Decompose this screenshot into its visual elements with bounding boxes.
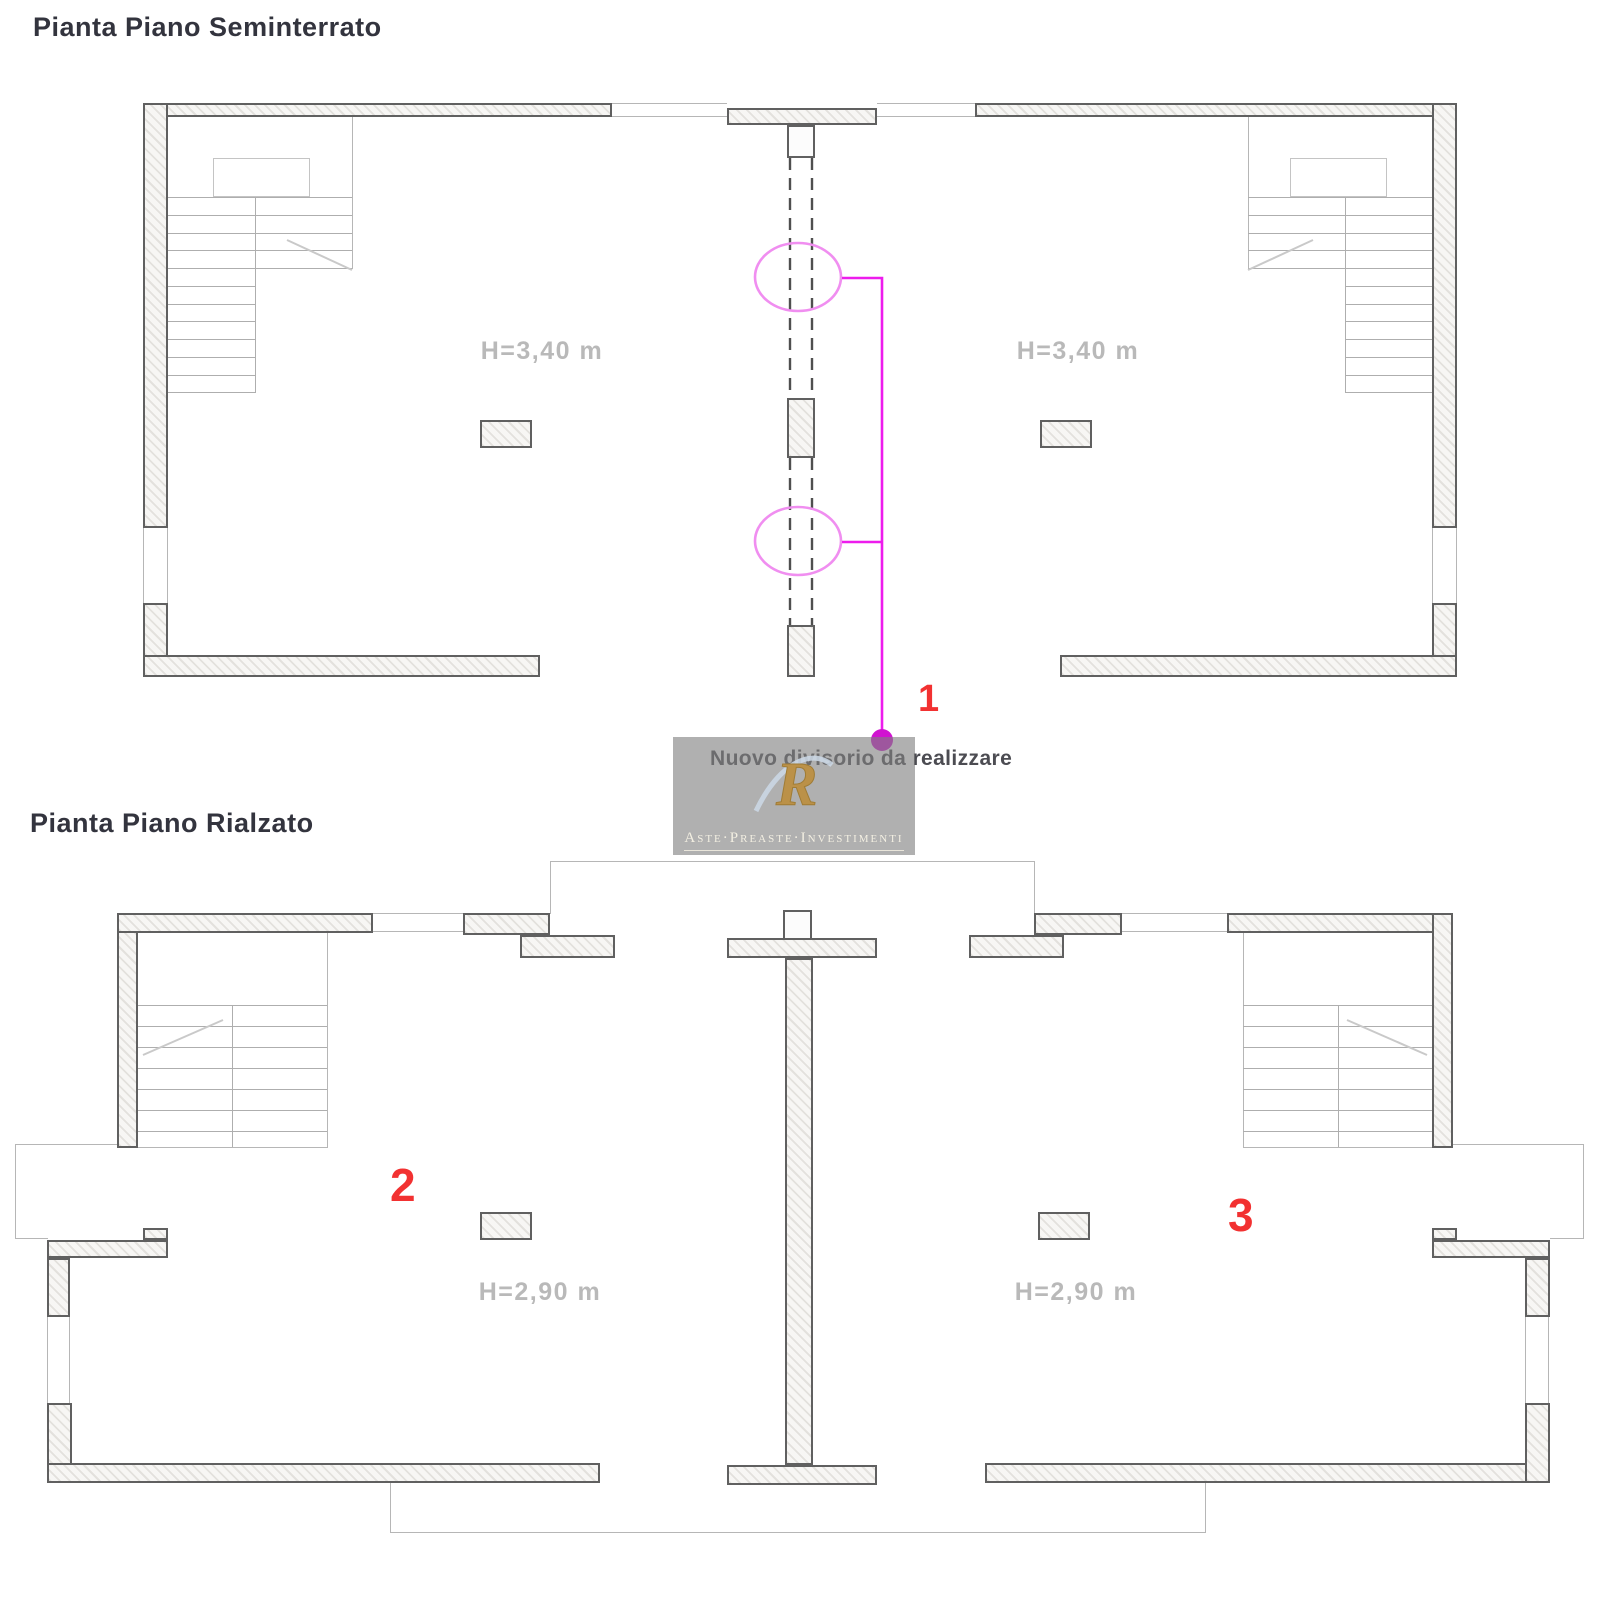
wall-segment [1060,655,1457,677]
thin-line [612,116,727,117]
wall-segment [787,398,815,458]
wall-segment [985,1463,1550,1483]
thin-line [1453,1144,1584,1145]
stair-tread [1248,233,1432,234]
height-label-upper-left: H=3,40 m [432,337,652,366]
lower-plan-title: Pianta Piano Rialzato [30,808,314,839]
wall-segment [480,420,532,448]
thin-line [1107,913,1227,914]
thin-line [877,103,975,104]
wall-segment [463,913,550,935]
thin-line [373,931,463,932]
thin-line [390,1483,391,1533]
marker-3: 3 [1228,1192,1254,1238]
thin-line [1107,931,1227,932]
thin-line [1243,933,1244,1148]
stair-tread [1345,392,1432,393]
wall-segment [520,935,615,958]
thin-line [1432,528,1433,604]
thin-line [550,861,1035,862]
wall-segment [1525,1403,1550,1483]
stair-tread [255,197,256,393]
stair-tread [168,197,352,198]
watermark-box: R Aste·Preaste·Investimenti [673,737,915,855]
floor-plan-sheet: Pianta Piano Seminterrato Pianta Piano R… [0,0,1600,1600]
stair-tread [1345,197,1346,393]
thin-line [15,1144,118,1145]
watermark-caption: Aste·Preaste·Investimenti [684,830,903,851]
wall-segment [1040,420,1092,448]
thin-line [15,1238,48,1239]
thin-line [47,1317,48,1403]
wall-segment [1038,1212,1090,1240]
thin-line [612,103,727,104]
marker-2: 2 [390,1162,416,1208]
stair-tread [232,1005,233,1147]
thin-line [143,528,144,604]
wall-segment [1432,103,1457,528]
thin-line [352,117,353,269]
stair-tread [1345,304,1432,305]
thin-line [138,1147,328,1148]
wall-segment [975,103,1457,117]
stair-tread [1248,268,1432,269]
wall-segment [143,103,612,117]
wall-segment [727,108,877,125]
thin-line [69,1317,70,1403]
stair-tread [1345,339,1432,340]
wall-segment [480,1212,532,1240]
marker-1: 1 [918,680,939,718]
wall-end-segment [783,910,812,940]
stair-tread [1345,357,1432,358]
wall-segment [1432,1240,1550,1258]
wall-segment [143,1228,168,1240]
thin-line [327,933,328,1148]
thin-line [877,116,975,117]
thin-line [390,1532,1206,1533]
thin-line [1548,1317,1549,1403]
wall-segment [787,625,815,677]
thin-line [1243,1147,1453,1148]
wall-segment [727,1465,877,1485]
stair-tread [168,392,255,393]
thin-line [15,1144,16,1239]
thin-line [167,528,168,604]
thin-line [1248,117,1249,269]
stair-tread [168,286,255,287]
wall-segment [117,913,373,933]
stair-tread [1345,321,1432,322]
wall-segment [47,1258,70,1317]
stair-tread [1345,375,1432,376]
stair-landing-outline [213,158,310,197]
wall-segment [1432,913,1453,1148]
wall-end-segment [787,125,815,158]
stair-tread [168,321,255,322]
wall-segment [1432,1228,1457,1240]
wall-segment [785,958,813,1465]
stair-tread [1345,286,1432,287]
stair-tread [168,215,352,216]
thin-line [1456,528,1457,604]
wall-segment [47,1463,600,1483]
wall-segment [1525,1258,1550,1317]
leader-line-1 [842,278,893,751]
thin-line [1525,1317,1526,1403]
wall-segment [143,655,540,677]
stair-tread [168,304,255,305]
thin-line [373,913,463,914]
dashed-partition-lines [790,158,812,625]
thin-line [1550,1238,1584,1239]
stair-tread [168,250,352,251]
height-label-lower-right: H=2,90 m [966,1278,1186,1307]
watermark-logo-icon: R [752,739,836,821]
stair-tread [168,233,352,234]
stair-tread [1248,250,1432,251]
thin-line [1205,1483,1206,1533]
height-label-lower-left: H=2,90 m [430,1278,650,1307]
thin-line [550,861,551,914]
stair-tread [1248,215,1432,216]
stair-tread [1338,1005,1339,1147]
logo-letter: R [775,751,817,819]
wall-segment [727,938,877,958]
upper-plan-title: Pianta Piano Seminterrato [33,12,382,43]
wall-segment [969,935,1064,958]
stair-tread [168,375,255,376]
wall-segment [117,913,138,1148]
stair-tread [168,339,255,340]
wall-segment [1034,913,1122,935]
wall-segment [143,103,168,528]
thin-line [1583,1144,1584,1239]
stair-landing-outline [1290,158,1387,197]
stair-tread [168,268,352,269]
stair-tread [1248,197,1432,198]
wall-segment [1227,913,1453,933]
height-label-upper-right: H=3,40 m [968,337,1188,366]
wall-segment [47,1240,168,1258]
thin-line [1034,861,1035,914]
stair-tread [168,357,255,358]
